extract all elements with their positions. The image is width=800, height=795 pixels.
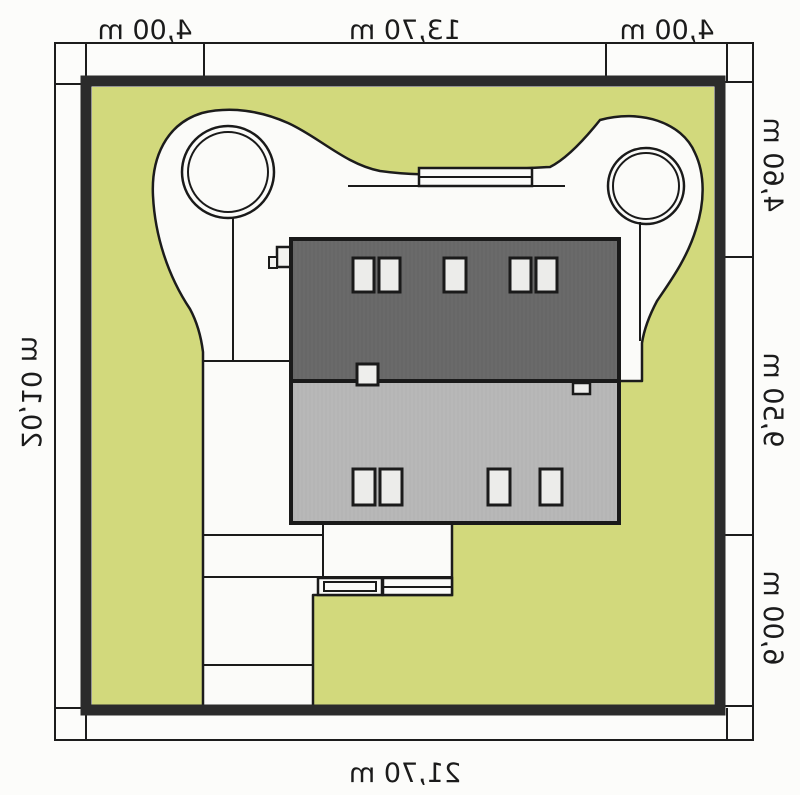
dim-side-2: 9,50 m: [757, 352, 788, 447]
roof-window: [353, 258, 374, 292]
roof-window: [444, 258, 466, 292]
roof-slope-light: [291, 381, 619, 523]
dim-top-left: 4,00 m: [619, 15, 714, 46]
roof-window: [488, 469, 510, 505]
dim-top-right: 4,00 m: [97, 15, 192, 46]
dim-side-3: 6,00 m: [757, 570, 788, 665]
roof-window: [353, 469, 375, 505]
entry-step-pad: [318, 578, 382, 595]
site-plan-drawing: 4,00 m 13,70 m 4,00 m 4,60 m 9,50 m 6,00…: [0, 0, 800, 795]
house: [269, 239, 619, 523]
dim-top-mid: 13,70 m: [349, 15, 461, 46]
site-plan-page: 4,00 m 13,70 m 4,00 m 4,60 m 9,50 m 6,00…: [0, 0, 800, 795]
roof-window: [379, 258, 400, 292]
ridge-chimney: [357, 364, 378, 385]
roof-windows-upper: [353, 258, 557, 292]
roof-window: [510, 258, 531, 292]
mirrored-plan: 4,00 m 13,70 m 4,00 m 4,60 m 9,50 m 6,00…: [15, 15, 788, 789]
dim-side-total: 20,10 m: [15, 336, 46, 448]
roof-vent: [573, 383, 590, 394]
roof-window: [380, 469, 402, 505]
roof-window: [540, 469, 562, 505]
roof-window: [536, 258, 557, 292]
dim-bottom-total: 21,70 m: [349, 758, 461, 789]
walkway-marking: [419, 168, 532, 186]
entry-steps: [383, 578, 452, 595]
dim-side-1: 4,60 m: [757, 117, 788, 212]
